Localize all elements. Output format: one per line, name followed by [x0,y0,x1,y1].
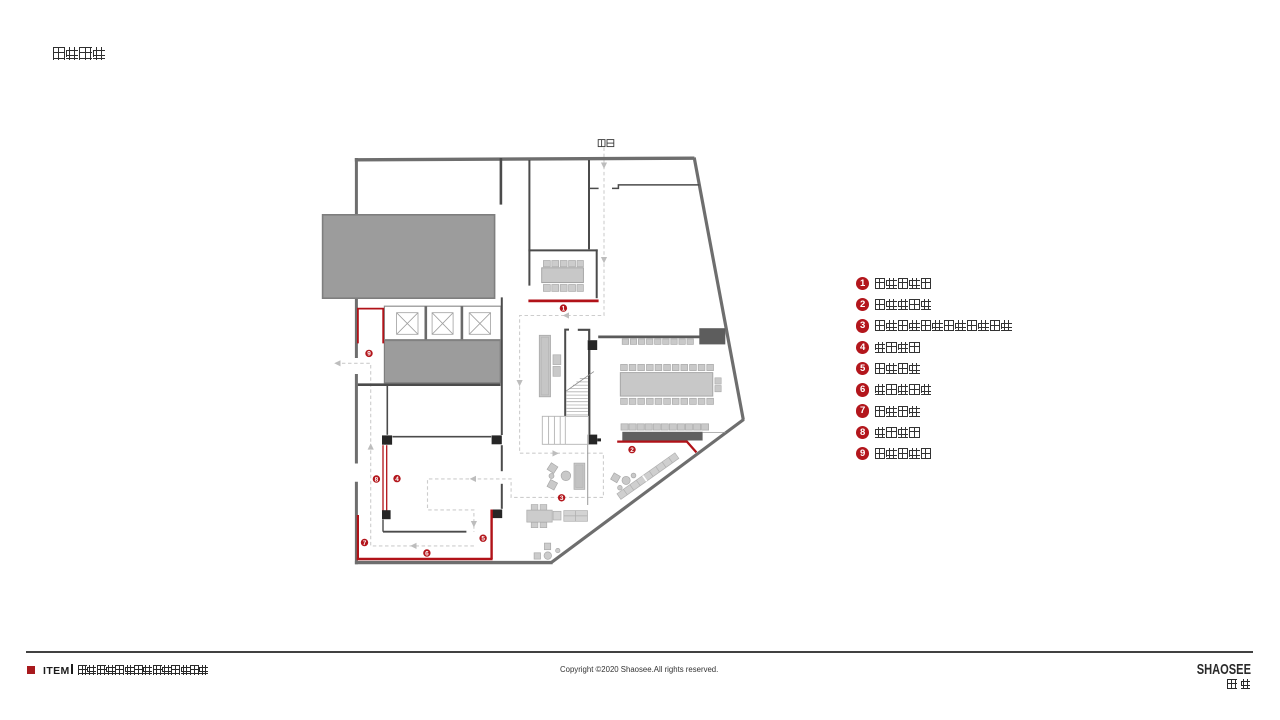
svg-text:6: 6 [425,550,429,557]
svg-text:4: 4 [395,476,399,483]
svg-text:7: 7 [363,540,367,547]
svg-text:9: 9 [367,351,371,358]
svg-text:3: 3 [560,495,564,502]
svg-text:1: 1 [562,305,566,312]
svg-text:8: 8 [375,476,379,483]
svg-text:2: 2 [630,447,634,454]
svg-text:5: 5 [481,536,485,543]
